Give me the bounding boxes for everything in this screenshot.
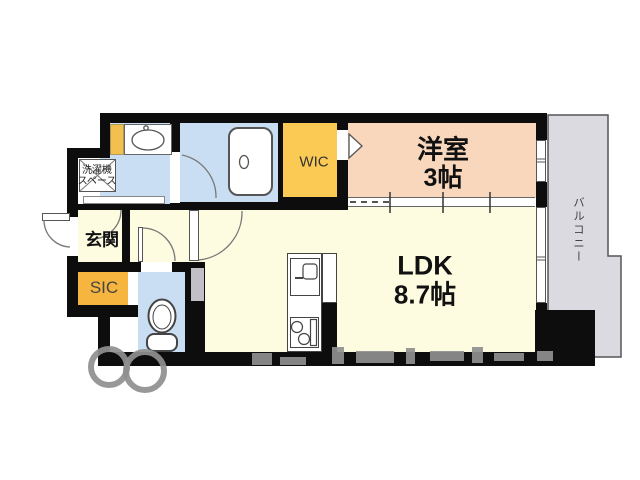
washbasin-icon	[132, 130, 164, 150]
bathroom-door-swing-arc	[182, 155, 216, 198]
laundry-label-line2: スペース	[78, 176, 117, 187]
room-label-wic: WIC	[299, 154, 328, 171]
room-size-western: 3帖	[424, 158, 463, 194]
folding-door-icon	[349, 134, 362, 158]
toilet-seat-line	[153, 305, 171, 329]
burner-icon	[299, 334, 310, 345]
burner-icon	[292, 322, 303, 333]
laundry-label-line1: 洗濯機	[78, 165, 117, 176]
floor-plan: 洋室 3帖 LDK 8.7帖 WIC 玄関 SIC 洗濯機 スペース バルコニー	[0, 0, 640, 480]
toilet-door-swing-arc	[143, 228, 175, 261]
washbasin-faucet-icon	[144, 126, 148, 130]
ldk-door-swing-arc	[199, 211, 242, 260]
entrance-door-swing-arc	[44, 220, 70, 247]
room-label-sic: SIC	[90, 278, 118, 298]
grill-icon	[311, 320, 317, 346]
window-mullion	[537, 159, 546, 260]
room-label-laundry: 洗濯機 スペース	[78, 165, 117, 187]
toilet-tank	[147, 334, 177, 351]
bathtub-drain-icon	[240, 156, 249, 169]
room-label-balcony: バルコニー	[570, 196, 586, 264]
sink-icon	[303, 264, 317, 279]
room-label-entrance: 玄関	[85, 226, 119, 251]
sliding-door-divider-tick	[390, 192, 490, 213]
room-size-ldk: 8.7帖	[394, 275, 456, 312]
